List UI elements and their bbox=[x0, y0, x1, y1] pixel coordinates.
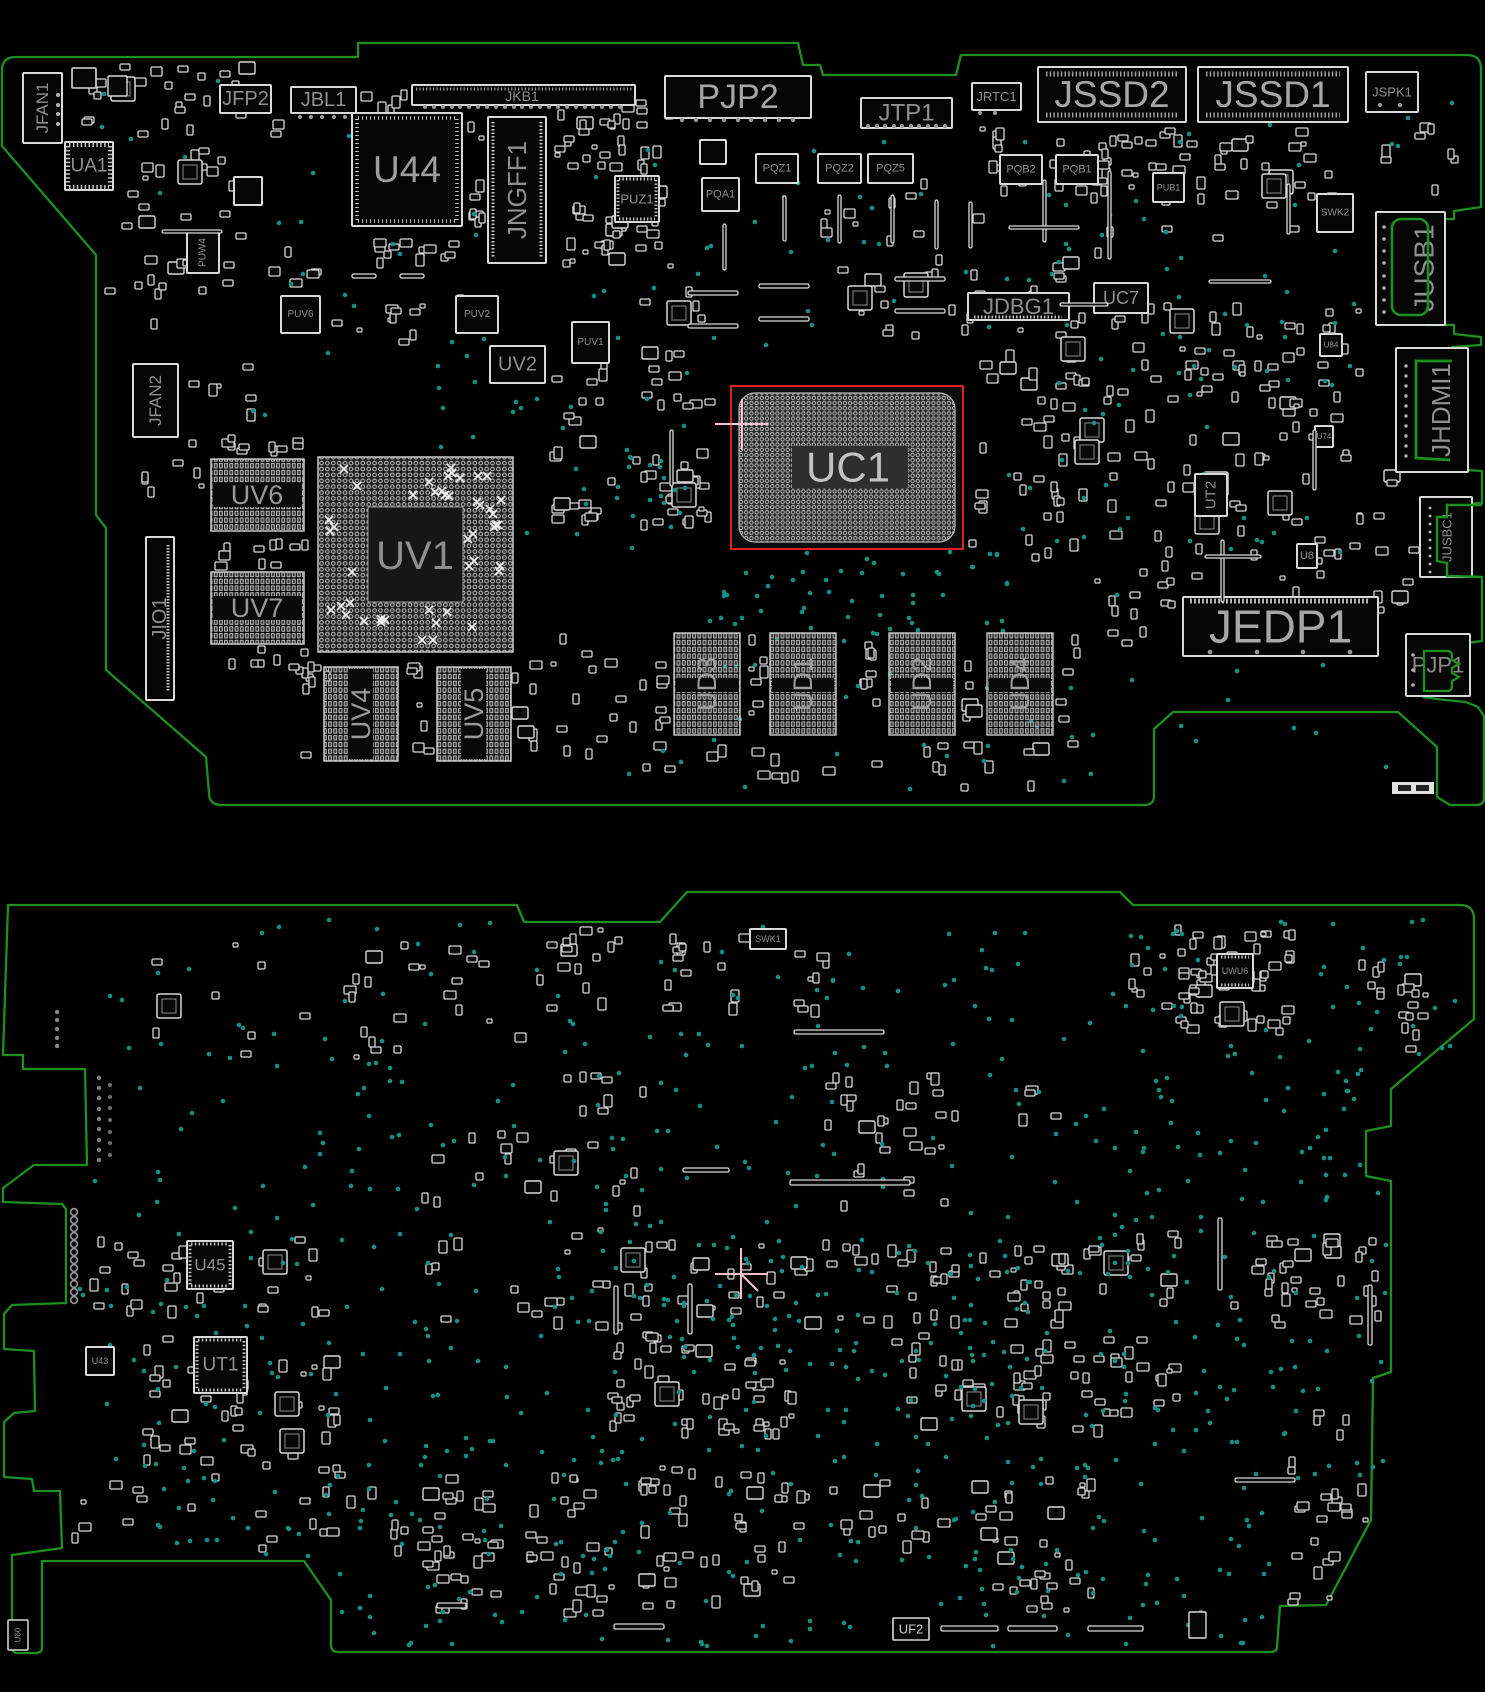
svg-text:UC1: UC1 bbox=[806, 444, 890, 491]
svg-text:JNGFF1: JNGFF1 bbox=[502, 141, 532, 239]
svg-text:PJP2: PJP2 bbox=[697, 78, 778, 116]
svg-text:SWK2: SWK2 bbox=[1321, 208, 1350, 219]
svg-text:PUV2: PUV2 bbox=[464, 309, 491, 320]
svg-text:JTP1: JTP1 bbox=[878, 100, 934, 127]
svg-text:UD2: UD2 bbox=[907, 657, 937, 711]
svg-text:U74: U74 bbox=[1317, 432, 1332, 441]
svg-text:UV1: UV1 bbox=[376, 534, 454, 578]
svg-text:UV2: UV2 bbox=[498, 354, 537, 376]
svg-text:UV5: UV5 bbox=[459, 688, 489, 741]
svg-text:JFAN1: JFAN1 bbox=[33, 82, 52, 133]
svg-text:JSSD1: JSSD1 bbox=[1215, 74, 1330, 115]
svg-text:PQB1: PQB1 bbox=[1062, 164, 1091, 176]
svg-text:UA1: UA1 bbox=[71, 156, 108, 177]
svg-text:PUW4: PUW4 bbox=[198, 238, 209, 267]
svg-text:JEDP1: JEDP1 bbox=[1209, 601, 1352, 653]
svg-text:JSPK1: JSPK1 bbox=[1372, 85, 1412, 100]
svg-text:UT1: UT1 bbox=[203, 1355, 239, 1376]
svg-text:UV4: UV4 bbox=[346, 688, 376, 741]
svg-text:UD3: UD3 bbox=[692, 657, 722, 711]
svg-text:JFP2: JFP2 bbox=[222, 88, 269, 110]
svg-text:U60: U60 bbox=[14, 1627, 23, 1642]
svg-text:JHDMI1: JHDMI1 bbox=[1426, 363, 1456, 457]
svg-text:UT2: UT2 bbox=[1203, 481, 1220, 509]
svg-text:UD4: UD4 bbox=[1005, 657, 1035, 711]
svg-text:UF2: UF2 bbox=[899, 1622, 924, 1637]
svg-text:JRTC1: JRTC1 bbox=[976, 89, 1016, 104]
svg-text:PQZ2: PQZ2 bbox=[825, 163, 854, 175]
svg-text:UD1: UD1 bbox=[788, 657, 818, 711]
svg-text:U8: U8 bbox=[1300, 550, 1314, 562]
svg-text:PQB2: PQB2 bbox=[1006, 164, 1035, 176]
svg-text:PUV6: PUV6 bbox=[287, 309, 314, 320]
svg-text:JFAN2: JFAN2 bbox=[146, 375, 165, 426]
svg-text:JUSB1: JUSB1 bbox=[1409, 224, 1440, 311]
svg-text:PQZ1: PQZ1 bbox=[763, 163, 792, 175]
svg-text:UV6: UV6 bbox=[231, 480, 284, 510]
svg-text:U43: U43 bbox=[92, 1356, 109, 1366]
svg-text:JSSD2: JSSD2 bbox=[1054, 74, 1169, 115]
svg-text:PQA1: PQA1 bbox=[706, 189, 735, 201]
svg-text:PUB1: PUB1 bbox=[1157, 183, 1181, 193]
svg-text:U84: U84 bbox=[1324, 341, 1339, 350]
svg-text:SWK1: SWK1 bbox=[755, 934, 781, 944]
svg-text:PQZ5: PQZ5 bbox=[876, 163, 905, 175]
svg-text:U44: U44 bbox=[373, 149, 441, 190]
svg-text:JBL1: JBL1 bbox=[301, 89, 347, 111]
svg-text:U45: U45 bbox=[194, 1256, 225, 1275]
svg-text:UV7: UV7 bbox=[231, 593, 284, 623]
svg-text:PUV1: PUV1 bbox=[577, 337, 604, 348]
svg-text:JUSBC1: JUSBC1 bbox=[1440, 512, 1455, 562]
svg-text:JDBG1: JDBG1 bbox=[983, 294, 1054, 319]
svg-text:PUZ1: PUZ1 bbox=[620, 192, 653, 207]
svg-text:UWU6: UWU6 bbox=[1222, 966, 1249, 976]
